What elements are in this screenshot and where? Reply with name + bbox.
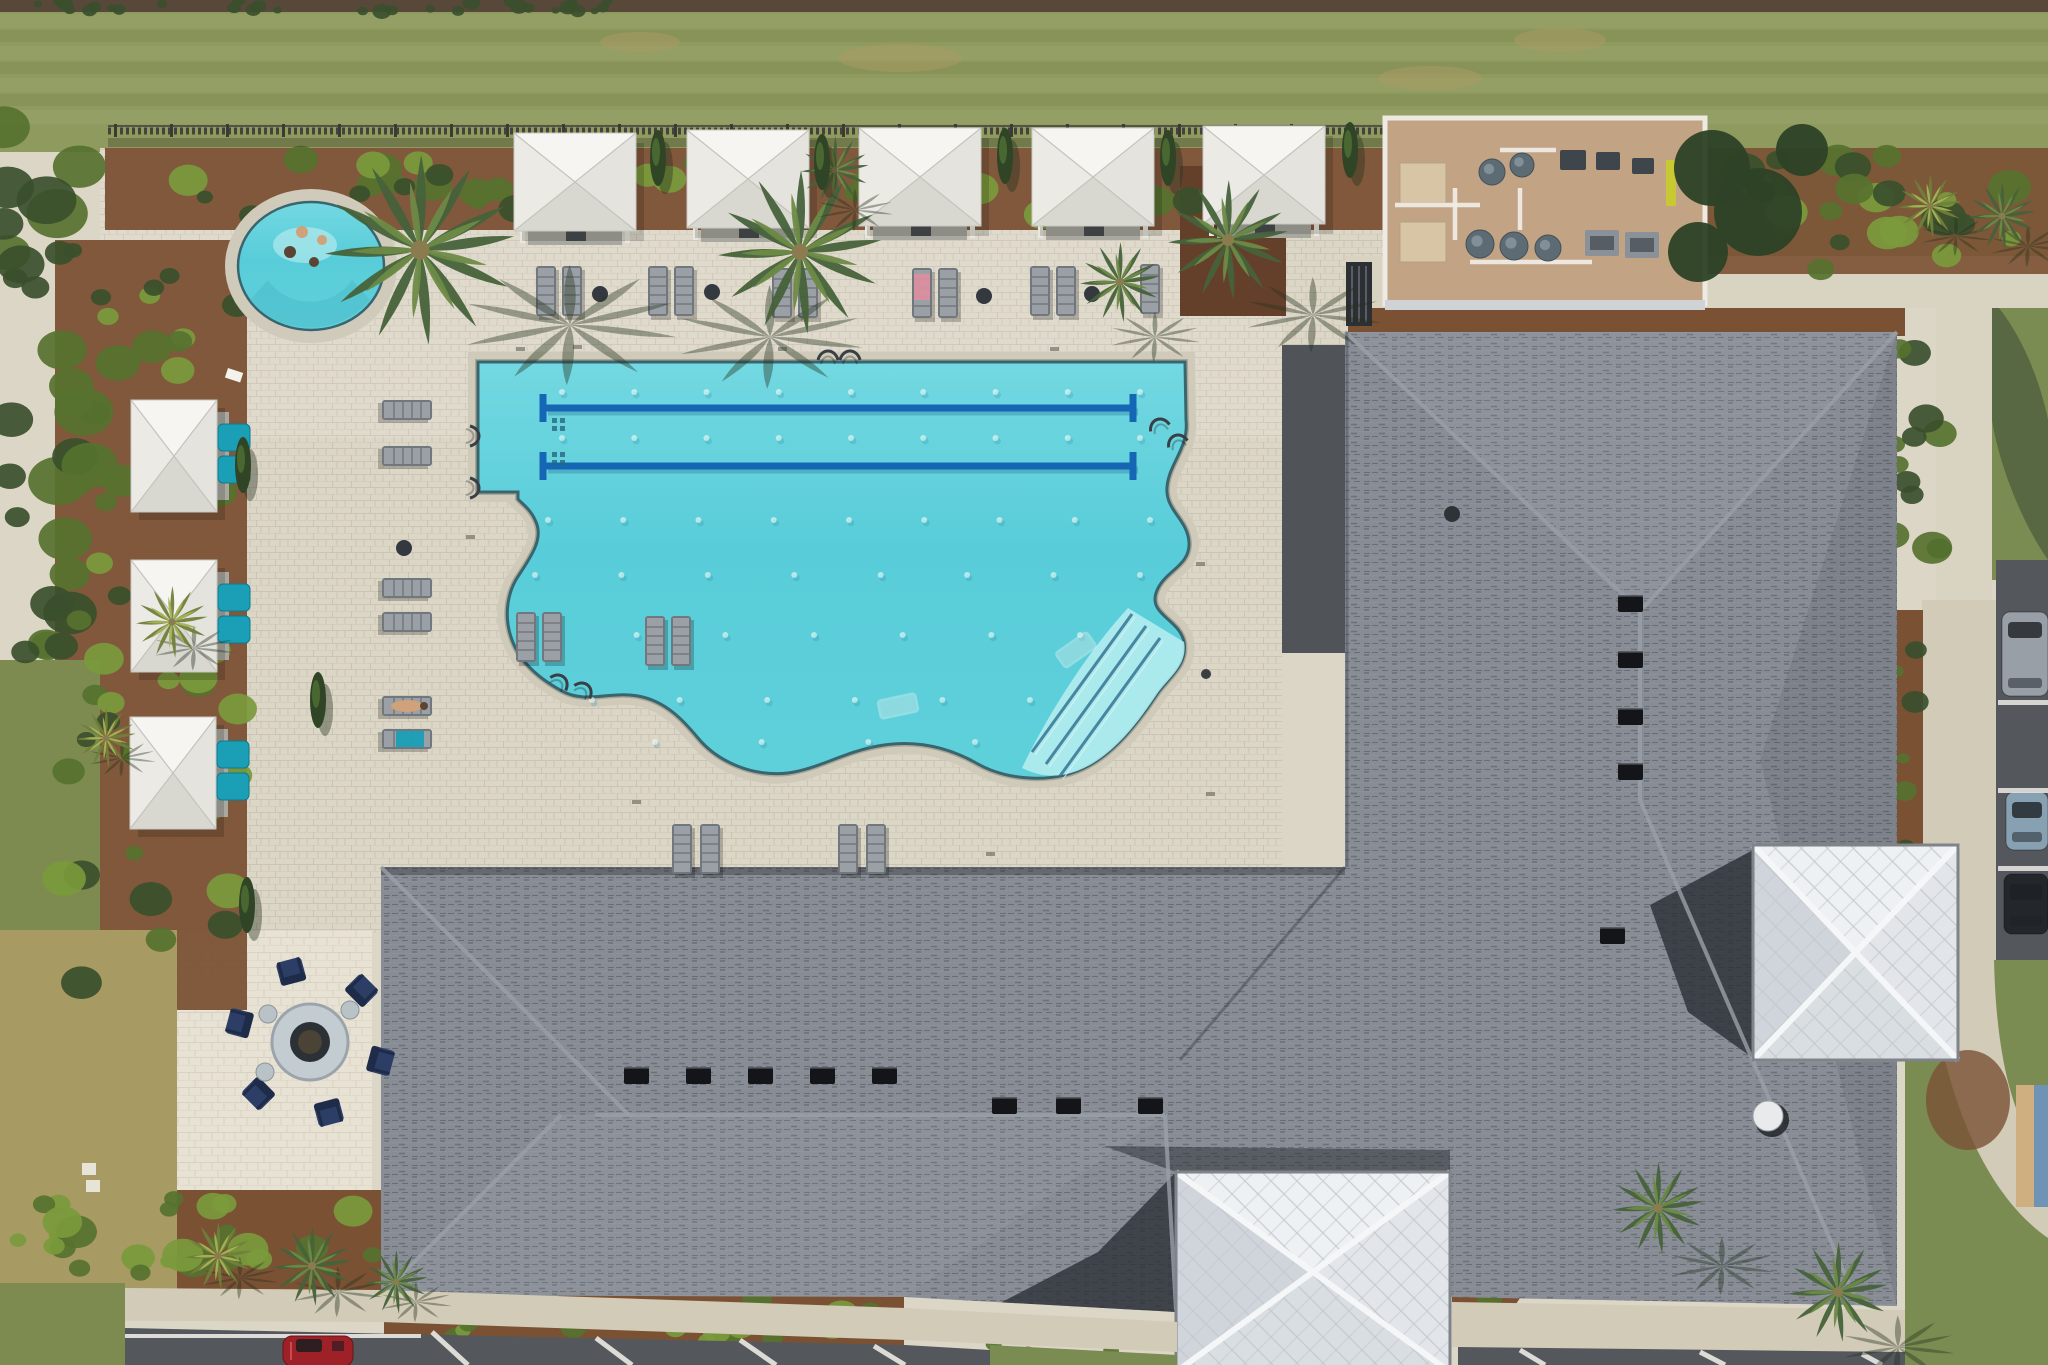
shaded-walkway bbox=[1282, 345, 1345, 653]
fence-post bbox=[842, 124, 845, 137]
pool-jet bbox=[939, 697, 945, 703]
shrub bbox=[1867, 217, 1908, 250]
towel-on-grass bbox=[86, 1180, 100, 1192]
shrub bbox=[130, 1264, 150, 1280]
shrub bbox=[108, 586, 131, 605]
lane-t-mark bbox=[540, 452, 547, 480]
dirt-patch bbox=[838, 44, 962, 72]
shrub bbox=[161, 357, 194, 384]
side-table bbox=[259, 1005, 277, 1023]
shrub bbox=[84, 643, 124, 675]
side-table bbox=[256, 1063, 274, 1081]
shrub bbox=[1902, 427, 1927, 447]
pump bbox=[1596, 152, 1620, 170]
pool-jet bbox=[1147, 517, 1153, 523]
misc-objects bbox=[1346, 262, 1372, 326]
pool-jet bbox=[776, 435, 782, 441]
shrub bbox=[197, 191, 213, 204]
deck-drain bbox=[1201, 669, 1211, 679]
shrub bbox=[11, 641, 39, 664]
pool-jet bbox=[811, 632, 817, 638]
drain-grate bbox=[552, 418, 557, 423]
person-in-spa bbox=[296, 226, 308, 238]
roof-vent bbox=[686, 1068, 711, 1084]
depth-marker bbox=[1196, 562, 1205, 566]
roof-vent bbox=[810, 1068, 835, 1084]
shrub bbox=[132, 330, 173, 363]
pool-jet bbox=[677, 697, 683, 703]
pool-jet bbox=[771, 517, 777, 523]
roof-vent bbox=[1618, 652, 1643, 668]
pump bbox=[1632, 158, 1654, 174]
teal-lounge-chair bbox=[218, 584, 250, 611]
shrub bbox=[67, 610, 92, 630]
pool-jet bbox=[921, 517, 927, 523]
depth-marker bbox=[516, 347, 525, 351]
shrub bbox=[218, 694, 257, 725]
pool-jet bbox=[532, 572, 538, 578]
fence-post bbox=[1178, 124, 1181, 137]
lounge-chair bbox=[866, 824, 889, 878]
red-car bbox=[283, 1336, 353, 1365]
lounge-chair bbox=[700, 824, 723, 878]
fence-post bbox=[674, 124, 677, 137]
parking-stripe bbox=[1998, 866, 2048, 871]
pool-jet bbox=[559, 435, 565, 441]
fence-post bbox=[114, 124, 117, 137]
shrub bbox=[97, 308, 118, 325]
roof-vent bbox=[1618, 596, 1643, 612]
shrub bbox=[559, 1, 576, 15]
pool-jet bbox=[722, 632, 728, 638]
pool-jet bbox=[900, 632, 906, 638]
roof-vent bbox=[1056, 1098, 1081, 1114]
pool-jet bbox=[997, 517, 1003, 523]
lounge-chair bbox=[671, 616, 694, 670]
shrub bbox=[37, 330, 86, 369]
shrub bbox=[1897, 753, 1910, 764]
windshield bbox=[2008, 622, 2042, 638]
shrub bbox=[1893, 471, 1920, 493]
lap-lane-line bbox=[543, 463, 1133, 470]
shrub bbox=[5, 507, 30, 527]
pool-jet bbox=[964, 572, 970, 578]
shrub bbox=[10, 1234, 27, 1247]
shrub bbox=[1988, 170, 2031, 204]
grass bbox=[0, 1283, 125, 1365]
mulch-bed bbox=[1926, 1050, 2010, 1150]
shrub bbox=[590, 8, 598, 15]
cabana bbox=[131, 400, 229, 520]
cabana bbox=[859, 128, 989, 240]
parked-car bbox=[2004, 874, 2048, 934]
shrub bbox=[284, 146, 319, 174]
parking-stripe bbox=[125, 1334, 421, 1338]
pool-jet bbox=[618, 572, 624, 578]
teal-lounge-chair bbox=[218, 616, 250, 643]
pool-jet bbox=[1137, 389, 1143, 395]
lane-t-mark bbox=[540, 394, 547, 422]
pool-jet bbox=[696, 517, 702, 523]
roof-vent bbox=[1618, 764, 1643, 780]
pink-towel bbox=[914, 274, 930, 300]
pool-jet bbox=[1137, 435, 1143, 441]
drain-grate bbox=[560, 418, 565, 423]
pool-jet bbox=[848, 389, 854, 395]
shrub bbox=[356, 151, 390, 178]
lounge-chair bbox=[674, 266, 697, 320]
lounge-chair bbox=[378, 446, 432, 469]
lane-t-mark bbox=[1130, 452, 1137, 480]
shrub bbox=[1835, 174, 1873, 204]
fence-post bbox=[282, 124, 285, 137]
trash-can bbox=[1444, 506, 1460, 522]
depth-marker bbox=[573, 345, 582, 349]
shrub bbox=[30, 586, 74, 621]
pool-jet bbox=[878, 572, 884, 578]
person-in-spa bbox=[284, 246, 296, 258]
teal-lounge-chair bbox=[217, 773, 249, 800]
shrub bbox=[52, 758, 85, 784]
pool-jet bbox=[972, 739, 978, 745]
shrub bbox=[62, 443, 118, 488]
lounge-chair bbox=[378, 696, 432, 719]
shrub bbox=[50, 558, 91, 590]
fence-post bbox=[226, 124, 229, 137]
shrub bbox=[49, 368, 94, 404]
shrub bbox=[146, 927, 176, 951]
shrub bbox=[97, 692, 124, 714]
side-table bbox=[396, 540, 412, 556]
pool-jet bbox=[704, 389, 710, 395]
pool-jet bbox=[620, 517, 626, 523]
pool-jet bbox=[1137, 572, 1143, 578]
drain-grate bbox=[552, 460, 557, 465]
roof-vent bbox=[1600, 928, 1625, 944]
lounge-chair bbox=[542, 612, 565, 666]
roof-fan-vent bbox=[1753, 1101, 1783, 1131]
shrub bbox=[125, 846, 143, 860]
sunbather bbox=[391, 700, 423, 712]
shrub bbox=[196, 1193, 229, 1220]
shrub bbox=[130, 882, 173, 916]
mow-stripe bbox=[0, 110, 2048, 124]
depth-marker bbox=[632, 800, 641, 804]
mow-stripe bbox=[0, 14, 2048, 28]
cabana bbox=[130, 717, 228, 837]
windshield bbox=[296, 1339, 322, 1352]
pump bbox=[1560, 150, 1586, 170]
pool-jet bbox=[1027, 697, 1033, 703]
parked-car bbox=[2006, 792, 2048, 850]
shrub bbox=[523, 3, 535, 13]
pool-jet bbox=[852, 697, 858, 703]
mow-stripe bbox=[0, 46, 2048, 60]
roof-vent bbox=[748, 1068, 773, 1084]
fence-post bbox=[450, 124, 453, 137]
equipment-pad bbox=[1385, 118, 1705, 304]
spa bbox=[225, 189, 397, 343]
pool-jet bbox=[705, 572, 711, 578]
pool-jet bbox=[704, 435, 710, 441]
roof-vent bbox=[624, 1068, 649, 1084]
towel-on-grass bbox=[82, 1163, 96, 1175]
drain-grate bbox=[560, 460, 565, 465]
shrub bbox=[69, 1260, 90, 1277]
pad-wall bbox=[1385, 300, 1705, 310]
fence-post bbox=[170, 124, 173, 137]
windshield bbox=[2010, 884, 2042, 900]
shrub bbox=[1830, 234, 1850, 250]
pool-jet bbox=[634, 632, 640, 638]
shrub bbox=[45, 633, 78, 660]
sand-strip bbox=[2016, 1085, 2034, 1207]
eave-shadow bbox=[381, 867, 1345, 875]
drain-grate bbox=[560, 452, 565, 457]
roof-vent bbox=[992, 1098, 1017, 1114]
parking-stripe bbox=[1998, 700, 2048, 705]
lounge-chair bbox=[378, 612, 432, 635]
lounge-chair bbox=[912, 268, 935, 322]
pool-jet bbox=[1065, 389, 1071, 395]
depth-marker bbox=[986, 852, 995, 856]
shrub bbox=[1807, 258, 1834, 280]
shrub bbox=[357, 7, 368, 16]
lounge-chair bbox=[378, 729, 432, 752]
shrub bbox=[157, 0, 167, 8]
lounge-chair bbox=[516, 612, 539, 666]
cabana bbox=[1032, 128, 1162, 240]
lane-t-mark bbox=[1130, 394, 1137, 422]
pool-jet bbox=[631, 435, 637, 441]
shrub bbox=[45, 241, 75, 265]
paver-path bbox=[1936, 300, 1992, 612]
shrub bbox=[42, 861, 86, 896]
shrub bbox=[386, 5, 398, 15]
shrub bbox=[1912, 532, 1952, 564]
tree-canopy bbox=[1776, 124, 1828, 176]
lounge-chair bbox=[645, 616, 668, 670]
pool-jet bbox=[545, 517, 551, 523]
person-in-spa bbox=[309, 257, 319, 267]
storage-box bbox=[1400, 163, 1446, 203]
pool-jet bbox=[993, 435, 999, 441]
shrub bbox=[86, 552, 113, 574]
lounge-chair bbox=[648, 266, 671, 320]
fence-post bbox=[506, 124, 509, 137]
pool-jet bbox=[631, 389, 637, 395]
side-table bbox=[976, 288, 992, 304]
shrub bbox=[334, 1196, 373, 1227]
shrub bbox=[17, 176, 77, 224]
lounge-chair bbox=[1030, 266, 1053, 320]
teal-towel bbox=[396, 731, 424, 747]
side-table bbox=[341, 1001, 359, 1019]
roof-vent bbox=[1618, 709, 1643, 725]
mulch-strip bbox=[1348, 308, 1905, 336]
pool-jet bbox=[776, 389, 782, 395]
pool-jet bbox=[920, 435, 926, 441]
fence-post bbox=[394, 124, 397, 137]
shrub bbox=[34, 1, 42, 8]
pool-jet bbox=[1065, 435, 1071, 441]
teal-lounge-chair bbox=[217, 741, 249, 768]
dirt-patch bbox=[1378, 66, 1482, 90]
lounge-chair bbox=[672, 824, 695, 878]
shrub bbox=[38, 517, 92, 560]
shrub bbox=[1873, 180, 1906, 206]
drain-grate bbox=[552, 452, 557, 457]
lounge-chair bbox=[1056, 266, 1079, 320]
pool-jet bbox=[791, 572, 797, 578]
pool-jet bbox=[559, 389, 565, 395]
windshield bbox=[2012, 802, 2042, 818]
roof-vent bbox=[1138, 1098, 1163, 1114]
shrub bbox=[95, 493, 118, 511]
pool-jet bbox=[1072, 517, 1078, 523]
mow-stripe bbox=[0, 62, 2048, 74]
fence-post bbox=[1010, 124, 1013, 137]
dirt-patch bbox=[600, 32, 680, 52]
shrub bbox=[1873, 145, 1901, 168]
parked-car bbox=[2002, 612, 2048, 696]
storage-box bbox=[1400, 222, 1446, 262]
pool-jet bbox=[652, 739, 658, 745]
pool-jet bbox=[848, 435, 854, 441]
side-table bbox=[704, 284, 720, 300]
pool-jet bbox=[920, 389, 926, 395]
shrub bbox=[426, 5, 436, 13]
depth-marker bbox=[1050, 347, 1059, 351]
parking-stripe bbox=[1998, 788, 2048, 793]
lounge-chair bbox=[838, 824, 861, 878]
shrub bbox=[164, 1191, 183, 1206]
drain-grate bbox=[552, 426, 557, 431]
shrub bbox=[21, 276, 49, 298]
shrub bbox=[61, 966, 102, 999]
dirt-patch bbox=[1514, 28, 1606, 52]
lounge-chair bbox=[378, 400, 432, 423]
shrub bbox=[273, 7, 282, 14]
mow-stripe bbox=[0, 30, 2048, 42]
mow-stripe bbox=[0, 94, 2048, 106]
lap-lane-line bbox=[543, 405, 1133, 412]
shrub bbox=[251, 0, 266, 12]
depth-marker bbox=[466, 535, 475, 539]
tree-canopy bbox=[1668, 222, 1728, 282]
shrub bbox=[1901, 691, 1928, 713]
depth-marker bbox=[1206, 792, 1215, 796]
pool-jet bbox=[1051, 572, 1057, 578]
shrub bbox=[1905, 641, 1927, 658]
lounge-chair bbox=[378, 578, 432, 601]
tree-canopy bbox=[1714, 168, 1802, 256]
roof-vent bbox=[872, 1068, 897, 1084]
fence-post bbox=[338, 124, 341, 137]
pool-jet bbox=[993, 389, 999, 395]
shrub bbox=[452, 6, 464, 16]
cabana bbox=[514, 133, 644, 245]
shrub bbox=[160, 268, 180, 284]
shrub bbox=[113, 4, 126, 15]
pool-jet bbox=[764, 697, 770, 703]
shrub bbox=[43, 1206, 83, 1238]
blue-court-edge bbox=[2034, 1085, 2048, 1207]
shrub bbox=[43, 1237, 64, 1254]
pool-jet bbox=[865, 739, 871, 745]
shrub bbox=[426, 164, 454, 186]
shrub bbox=[208, 911, 243, 939]
mow-stripe bbox=[0, 78, 2048, 92]
lounge-chair bbox=[938, 268, 961, 322]
shrub bbox=[82, 4, 97, 16]
shrub bbox=[91, 289, 111, 305]
drain-grate bbox=[560, 426, 565, 431]
pool-jet bbox=[759, 739, 765, 745]
pool-jet bbox=[846, 517, 852, 523]
pool-jet bbox=[988, 632, 994, 638]
shrub bbox=[363, 1247, 382, 1262]
shrub bbox=[551, 7, 559, 14]
shrub bbox=[144, 279, 164, 295]
shrub bbox=[1819, 202, 1842, 220]
person-in-spa bbox=[317, 235, 327, 245]
scene-svg bbox=[0, 0, 2048, 1365]
aerial-photo bbox=[0, 0, 2048, 1365]
